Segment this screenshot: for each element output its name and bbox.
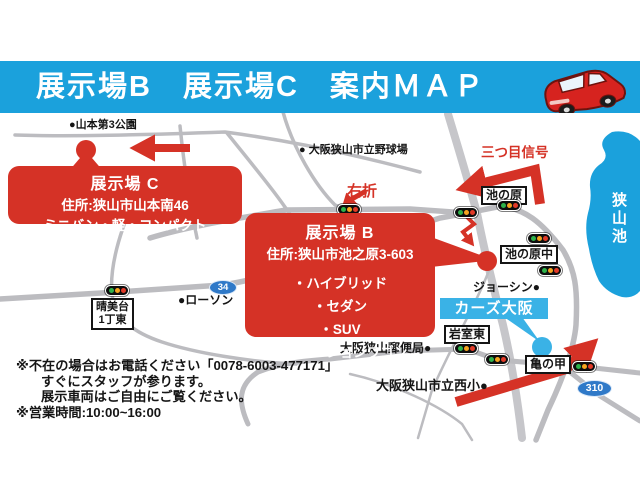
map-label-park: ●山本第3公園 bbox=[69, 119, 137, 131]
route-badge-310: 310 bbox=[577, 380, 612, 397]
traffic-signal-icon bbox=[454, 207, 478, 218]
dealer-label: カーズ大阪 bbox=[440, 298, 548, 319]
note-line-1: ※不在の場合はお電話ください「0078-6003-477171」 bbox=[16, 358, 338, 374]
car-icon bbox=[538, 63, 634, 113]
map-label-elementary: 大阪狭山市立西小● bbox=[376, 379, 488, 393]
site-b-vehicle: ・セダン bbox=[245, 295, 435, 315]
traffic-signal-icon bbox=[538, 265, 562, 276]
arrow-zigzag-down bbox=[463, 217, 474, 241]
traffic-signal-icon bbox=[105, 285, 129, 296]
site-c-title: 展示場 C bbox=[8, 170, 242, 194]
intersection-box-harumidai: 晴美台 1丁東 bbox=[91, 298, 134, 330]
direction-note-third-signal: 三つ目信号 bbox=[481, 141, 549, 161]
note-line-2: すぐにスタッフが参ります。 bbox=[16, 374, 338, 390]
lake-label: 狭山池 bbox=[608, 192, 629, 246]
route-badge-34: 34 bbox=[209, 280, 237, 295]
marker-site-b bbox=[477, 251, 497, 271]
marker-site-c bbox=[76, 140, 96, 160]
direction-note-right-turn: 右折 bbox=[347, 180, 377, 201]
intersection-box-iwamurohigashi: 岩室東 bbox=[444, 325, 490, 344]
page-title: 展示場B 展示場C 案内ＭＡＰ bbox=[36, 61, 485, 113]
site-b-vehicle: ・SUV bbox=[245, 318, 435, 338]
note-line-3: 展示車両はご自由にご覧ください。 bbox=[16, 389, 338, 405]
map-label-baseball: ● 大阪狭山市立野球場 bbox=[299, 144, 408, 156]
notes: ※不在の場合はお電話ください「0078-6003-477171」 すぐにスタッフ… bbox=[16, 358, 338, 420]
intersection-box-kamenoko: 亀の甲 bbox=[525, 355, 571, 374]
map-page: 展示場B 展示場C 案内ＭＡＰ ●山本第3公園 ● 大阪狭山市立野球場 ジョーシ… bbox=[0, 0, 640, 480]
site-b-callout: 展示場 B 住所:狭山市池之原3-603 ・ハイブリッド ・セダン ・SUV ・… bbox=[245, 213, 435, 337]
map-label-lawson: ●ローソン bbox=[178, 294, 233, 307]
traffic-signal-icon bbox=[572, 361, 596, 372]
marker-dealer bbox=[532, 337, 552, 357]
traffic-signal-icon bbox=[497, 200, 521, 211]
traffic-signal-icon bbox=[454, 343, 478, 354]
site-c-vehicles: ミニバン・軽・コンパクト bbox=[8, 214, 242, 234]
traffic-signal-icon bbox=[485, 354, 509, 365]
traffic-signal-icon bbox=[527, 233, 551, 244]
intersection-box-ikenoharanaka: 池の原中 bbox=[500, 245, 558, 264]
site-c-address: 住所:狭山市山本南46 bbox=[8, 194, 242, 214]
harumidai-line2: 1丁東 bbox=[96, 314, 129, 327]
site-b-title: 展示場 B bbox=[245, 219, 435, 243]
site-b-address: 住所:狭山市池之原3-603 bbox=[245, 243, 435, 263]
site-b-vehicle: ・ハイブリッド bbox=[245, 272, 435, 292]
site-c-callout: 展示場 C 住所:狭山市山本南46 ミニバン・軽・コンパクト bbox=[8, 166, 242, 224]
note-line-4: ※営業時間:10:00~16:00 bbox=[16, 405, 338, 421]
map-label-joshin: ジョーシン● bbox=[473, 281, 540, 294]
header-bar: 展示場B 展示場C 案内ＭＡＰ bbox=[0, 61, 640, 113]
harumidai-line1: 晴美台 bbox=[96, 301, 129, 314]
